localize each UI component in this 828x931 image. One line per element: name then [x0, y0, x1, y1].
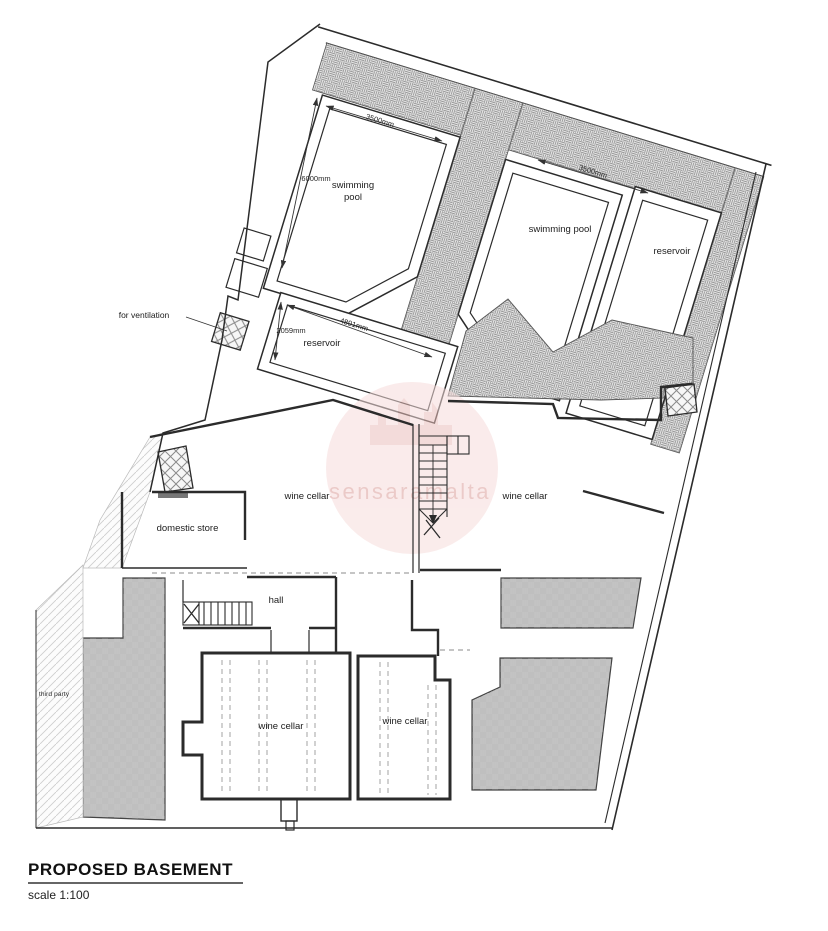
- watermark-circle: [326, 382, 498, 554]
- drawing-sheet: sensaramalta: [0, 0, 828, 931]
- dimension-reservoir-width: 2059mm: [266, 326, 316, 335]
- label-wine-cellar-mid-left: wine cellar: [272, 491, 342, 503]
- label-domestic-store: domestic store: [140, 523, 235, 535]
- label-reservoir-upper: reservoir: [637, 246, 707, 258]
- floor-plan-svg: sensaramalta: [0, 0, 828, 931]
- label-swimming-pool-1: swimming pool: [322, 180, 384, 204]
- watermark-text: sensaramalta: [329, 479, 491, 504]
- label-wine-cellar-bottom-left: wine cellar: [246, 721, 316, 733]
- label-reservoir-lower: reservoir: [287, 338, 357, 350]
- label-hall: hall: [256, 595, 296, 607]
- hatch-block-a: [501, 578, 641, 628]
- drawing-scale: scale 1:100: [28, 888, 243, 902]
- dimension-pool1-length: 6000mm: [291, 174, 341, 183]
- ventilation-shaft-right: [665, 384, 697, 416]
- title-block: PROPOSED BASEMENT scale 1:100: [28, 860, 243, 902]
- label-wine-cellar-mid-right: wine cellar: [490, 491, 560, 503]
- annotation-third-party: third party: [24, 691, 84, 699]
- label-wine-cellar-bottom-right: wine cellar: [370, 716, 440, 728]
- drawing-title: PROPOSED BASEMENT: [28, 860, 243, 884]
- annotation-for-ventilation: for ventilation: [104, 310, 184, 321]
- watermark: sensaramalta: [326, 382, 498, 554]
- label-swimming-pool-2: swimming pool: [527, 224, 593, 236]
- ventilation-shaft-store: [158, 446, 193, 492]
